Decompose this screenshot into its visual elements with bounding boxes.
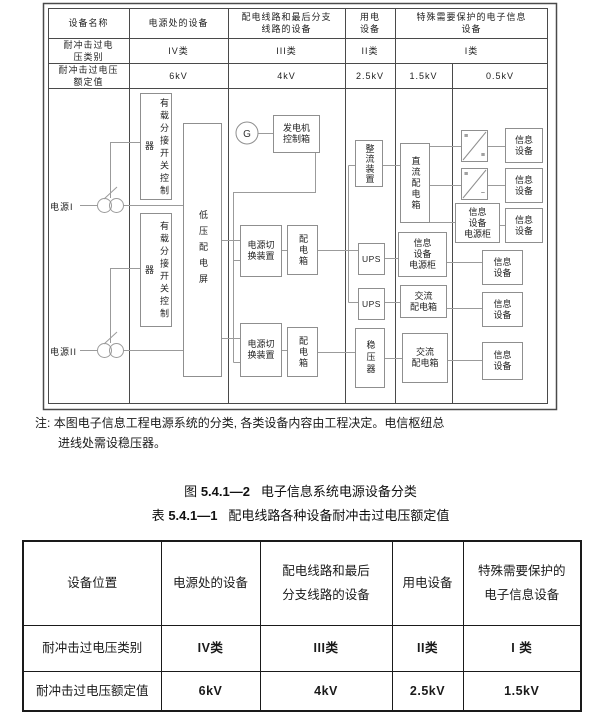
table-row: 耐冲击过电压类别 IV类 III类 II类 I 类 <box>23 625 581 671</box>
box-ac-distribution-2: 交流 配电箱 <box>402 333 448 383</box>
box-ups-1: UPS <box>358 243 385 275</box>
source-2-label: 电源II <box>50 345 77 358</box>
figure-caption-prefix: 图 <box>184 484 197 499</box>
source-1-label: 电源I <box>50 200 74 213</box>
dc-dc-converter-icon: ≡ ≡ <box>461 130 488 162</box>
rating-6kv: 6kV <box>161 671 260 711</box>
table-caption-number: 5.4.1—1 <box>168 508 217 523</box>
fig-category-ii: II类 <box>345 38 395 63</box>
dc-mark: ≡ <box>481 152 485 159</box>
box-voltage-stabilizer: 稳压器 <box>355 328 385 388</box>
header-power-source: 电源处的设备 <box>161 541 260 625</box>
figure-caption-title: 电子信息系统电源设备分类 <box>261 484 417 499</box>
generator-icon: G <box>243 129 251 140</box>
impulse-withstand-table: 设备位置 电源处的设备 配电线路和最后 分支线路的设备 用电设备 特殊需要保护的… <box>22 540 582 712</box>
table-header-row: 设备位置 电源处的设备 配电线路和最后 分支线路的设备 用电设备 特殊需要保护的… <box>23 541 581 625</box>
header-consumer: 用电设备 <box>392 541 463 625</box>
rating-row-label: 耐冲击过电压额定值 <box>23 671 161 711</box>
fig-rating-6kv: 6kV <box>129 63 228 88</box>
box-tap-changer-controller-1: 有载分接开关控制器 <box>140 93 172 200</box>
box-rectifier: 整流装置 <box>355 140 383 187</box>
header-distribution: 配电线路和最后 分支线路的设备 <box>260 541 392 625</box>
table-caption: 表 5.4.1—1 配电线路各种设备耐冲击过电压额定值 <box>0 505 601 524</box>
table-row: 耐冲击过电压额定值 6kV 4kV 2.5kV 1.5kV <box>23 671 581 711</box>
header-equipment-position: 设备位置 <box>23 541 161 625</box>
box-info-device-4: 信息 设备 <box>482 250 523 285</box>
dc-ac-inverter-icon: ≡ ~ <box>461 168 488 200</box>
fig-category-i: I类 <box>395 38 548 63</box>
box-info-device-5: 信息 设备 <box>482 292 523 327</box>
rating-4kv: 4kV <box>260 671 392 711</box>
box-info-power-cabinet-mid: 信息 设备 电源柜 <box>455 203 500 243</box>
fig-rating-1-5kv: 1.5kV <box>395 63 452 88</box>
box-dc-distribution: 直流配电箱 <box>400 143 430 223</box>
box-info-device-1: 信息 设备 <box>505 128 543 163</box>
box-distribution-1: 配电箱 <box>287 225 318 275</box>
rating-1-5kv: 1.5kV <box>463 671 581 711</box>
note-line-2: 进线处需设稳压器。 <box>58 433 444 453</box>
document-page: G 设备名称 电源处的设备 配电线路和最后分支 线路的设备 用电 设备 特殊需要… <box>0 0 601 712</box>
fig-category-iv: IV类 <box>129 38 228 63</box>
category-i: I 类 <box>463 625 581 671</box>
figure-caption-number: 5.4.1—2 <box>201 484 250 499</box>
box-info-device-3: 信息 设备 <box>505 208 543 243</box>
fig-row-category-label: 耐冲击过电 压类别 <box>48 38 129 63</box>
box-info-device-2: 信息 设备 <box>505 168 543 203</box>
box-info-power-cabinet-left: 信息 设备 电源柜 <box>398 232 447 277</box>
box-ac-distribution-1: 交流 配电箱 <box>400 285 447 318</box>
dc-mark: ≡ <box>464 133 468 140</box>
table-caption-prefix: 表 <box>152 508 165 523</box>
category-iii: III类 <box>260 625 392 671</box>
fig-rating-2-5kv: 2.5kV <box>345 63 395 88</box>
box-generator-control: 发电机 控制箱 <box>273 115 320 153</box>
box-transfer-switch-2: 电源切 换装置 <box>240 323 282 377</box>
rating-2-5kv: 2.5kV <box>392 671 463 711</box>
fig-category-iii: III类 <box>228 38 345 63</box>
fig-col-header-equipment-name: 设备名称 <box>48 8 129 38</box>
box-info-device-6: 信息 设备 <box>482 342 523 380</box>
figure-caption: 图 5.4.1—2 电子信息系统电源设备分类 <box>0 481 601 500</box>
ac-mark: ~ <box>481 190 485 197</box>
box-tap-changer-controller-2: 有载分接开关控制器 <box>140 213 172 327</box>
note-line-1: 本图电子信息工程电源系统的分类, 各类设备内容由工程决定。电信枢纽总 <box>54 416 445 430</box>
fig-rating-4kv: 4kV <box>228 63 345 88</box>
dc-mark: ≡ <box>464 171 468 178</box>
figure-note: 注: 本图电子信息工程电源系统的分类, 各类设备内容由工程决定。电信枢纽总 进线… <box>35 413 444 453</box>
box-ups-2: UPS <box>358 288 385 320</box>
fig-col-header-consumer: 用电 设备 <box>345 8 395 38</box>
fig-col-header-power-source: 电源处的设备 <box>129 8 228 38</box>
box-distribution-2: 配电箱 <box>287 327 318 377</box>
fig-rating-0-5kv: 0.5kV <box>452 63 548 88</box>
box-transfer-switch-1: 电源切 换装置 <box>240 225 282 277</box>
fig-col-header-protected-it: 特殊需要保护的电子信息 设备 <box>395 8 548 38</box>
category-iv: IV类 <box>161 625 260 671</box>
header-protected-it: 特殊需要保护的 电子信息设备 <box>463 541 581 625</box>
note-prefix: 注: <box>35 416 50 430</box>
category-row-label: 耐冲击过电压类别 <box>23 625 161 671</box>
fig-col-header-distribution: 配电线路和最后分支 线路的设备 <box>228 8 345 38</box>
fig-row-rating-label: 耐冲击过电压 额定值 <box>48 63 129 88</box>
box-lv-distribution-panel: 低压配电屏 <box>183 123 222 377</box>
table-caption-title: 配电线路各种设备耐冲击过电压额定值 <box>228 508 449 523</box>
category-ii: II类 <box>392 625 463 671</box>
